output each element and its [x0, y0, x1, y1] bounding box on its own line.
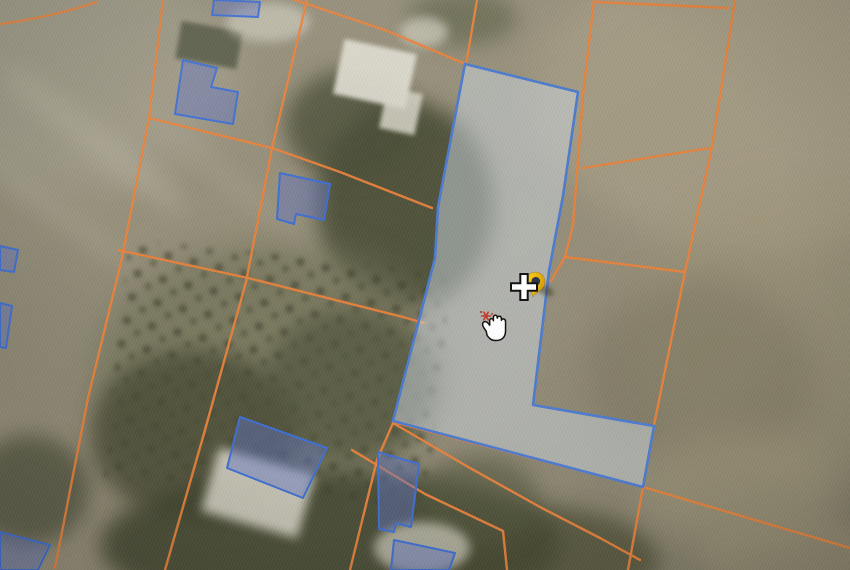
map-viewport[interactable] [0, 0, 850, 570]
map-canvas[interactable] [0, 0, 850, 570]
building-footprint [212, 0, 260, 17]
building-footprint [0, 246, 18, 272]
building-footprint [378, 452, 419, 532]
